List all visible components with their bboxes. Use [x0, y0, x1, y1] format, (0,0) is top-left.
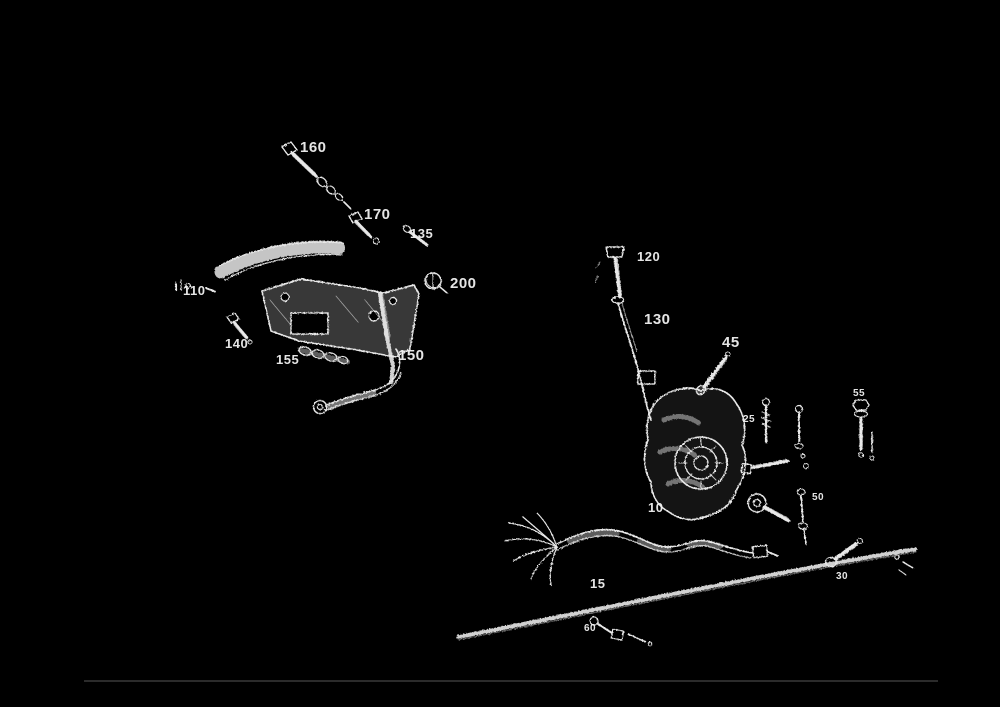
main-hose: [505, 513, 778, 585]
part-label-25: 25: [743, 414, 755, 425]
small-parts-column-55: [853, 400, 874, 460]
small-parts-column-50: [795, 406, 809, 545]
part-label-135: 135: [410, 226, 433, 241]
part-callouts: 160 170 135 200 110 140 155 150 120 130 …: [183, 139, 865, 634]
part-label-170: 170: [364, 206, 391, 223]
diagram-canvas: 160 170 135 200 110 140 155 150 120 130 …: [0, 0, 1000, 707]
stud-horizontal: [741, 461, 788, 474]
fitting-cluster-60: [590, 617, 652, 646]
part-label-15: 15: [590, 576, 605, 591]
bracket-assembly: [176, 142, 447, 414]
part-label-150: 150: [398, 347, 425, 364]
part-label-155: 155: [276, 352, 299, 367]
diagram-artwork: [176, 142, 916, 646]
bottom-divider: [84, 680, 938, 682]
part-label-10: 10: [648, 500, 663, 515]
bracket-plate: [262, 279, 419, 357]
washer-bolt: [748, 494, 789, 521]
part-label-110: 110: [183, 283, 205, 298]
part-label-55: 55: [853, 388, 865, 399]
spring-bolt-25: [762, 399, 770, 443]
bolt-120: [595, 247, 624, 303]
part-label-50: 50: [812, 492, 824, 503]
part-label-130: 130: [644, 311, 671, 328]
part-label-30: 30: [836, 571, 848, 582]
exploded-parts-diagram: 160 170 135 200 110 140 155 150 120 130 …: [0, 0, 1000, 707]
part-label-45: 45: [722, 334, 740, 351]
part-label-160: 160: [300, 139, 327, 156]
part-label-120: 120: [637, 249, 660, 264]
clamp-200: [425, 273, 447, 293]
part-label-200: 200: [450, 275, 477, 292]
diagonal-line-part-15: [458, 549, 916, 640]
pump-assembly: [595, 247, 874, 567]
part-label-140: 140: [225, 336, 248, 351]
washer-row-155: [298, 346, 349, 365]
ribbed-arm: [219, 242, 343, 280]
end-fittings: [895, 555, 913, 575]
part-label-60: 60: [584, 623, 596, 634]
hose-burst-end: [505, 513, 557, 585]
